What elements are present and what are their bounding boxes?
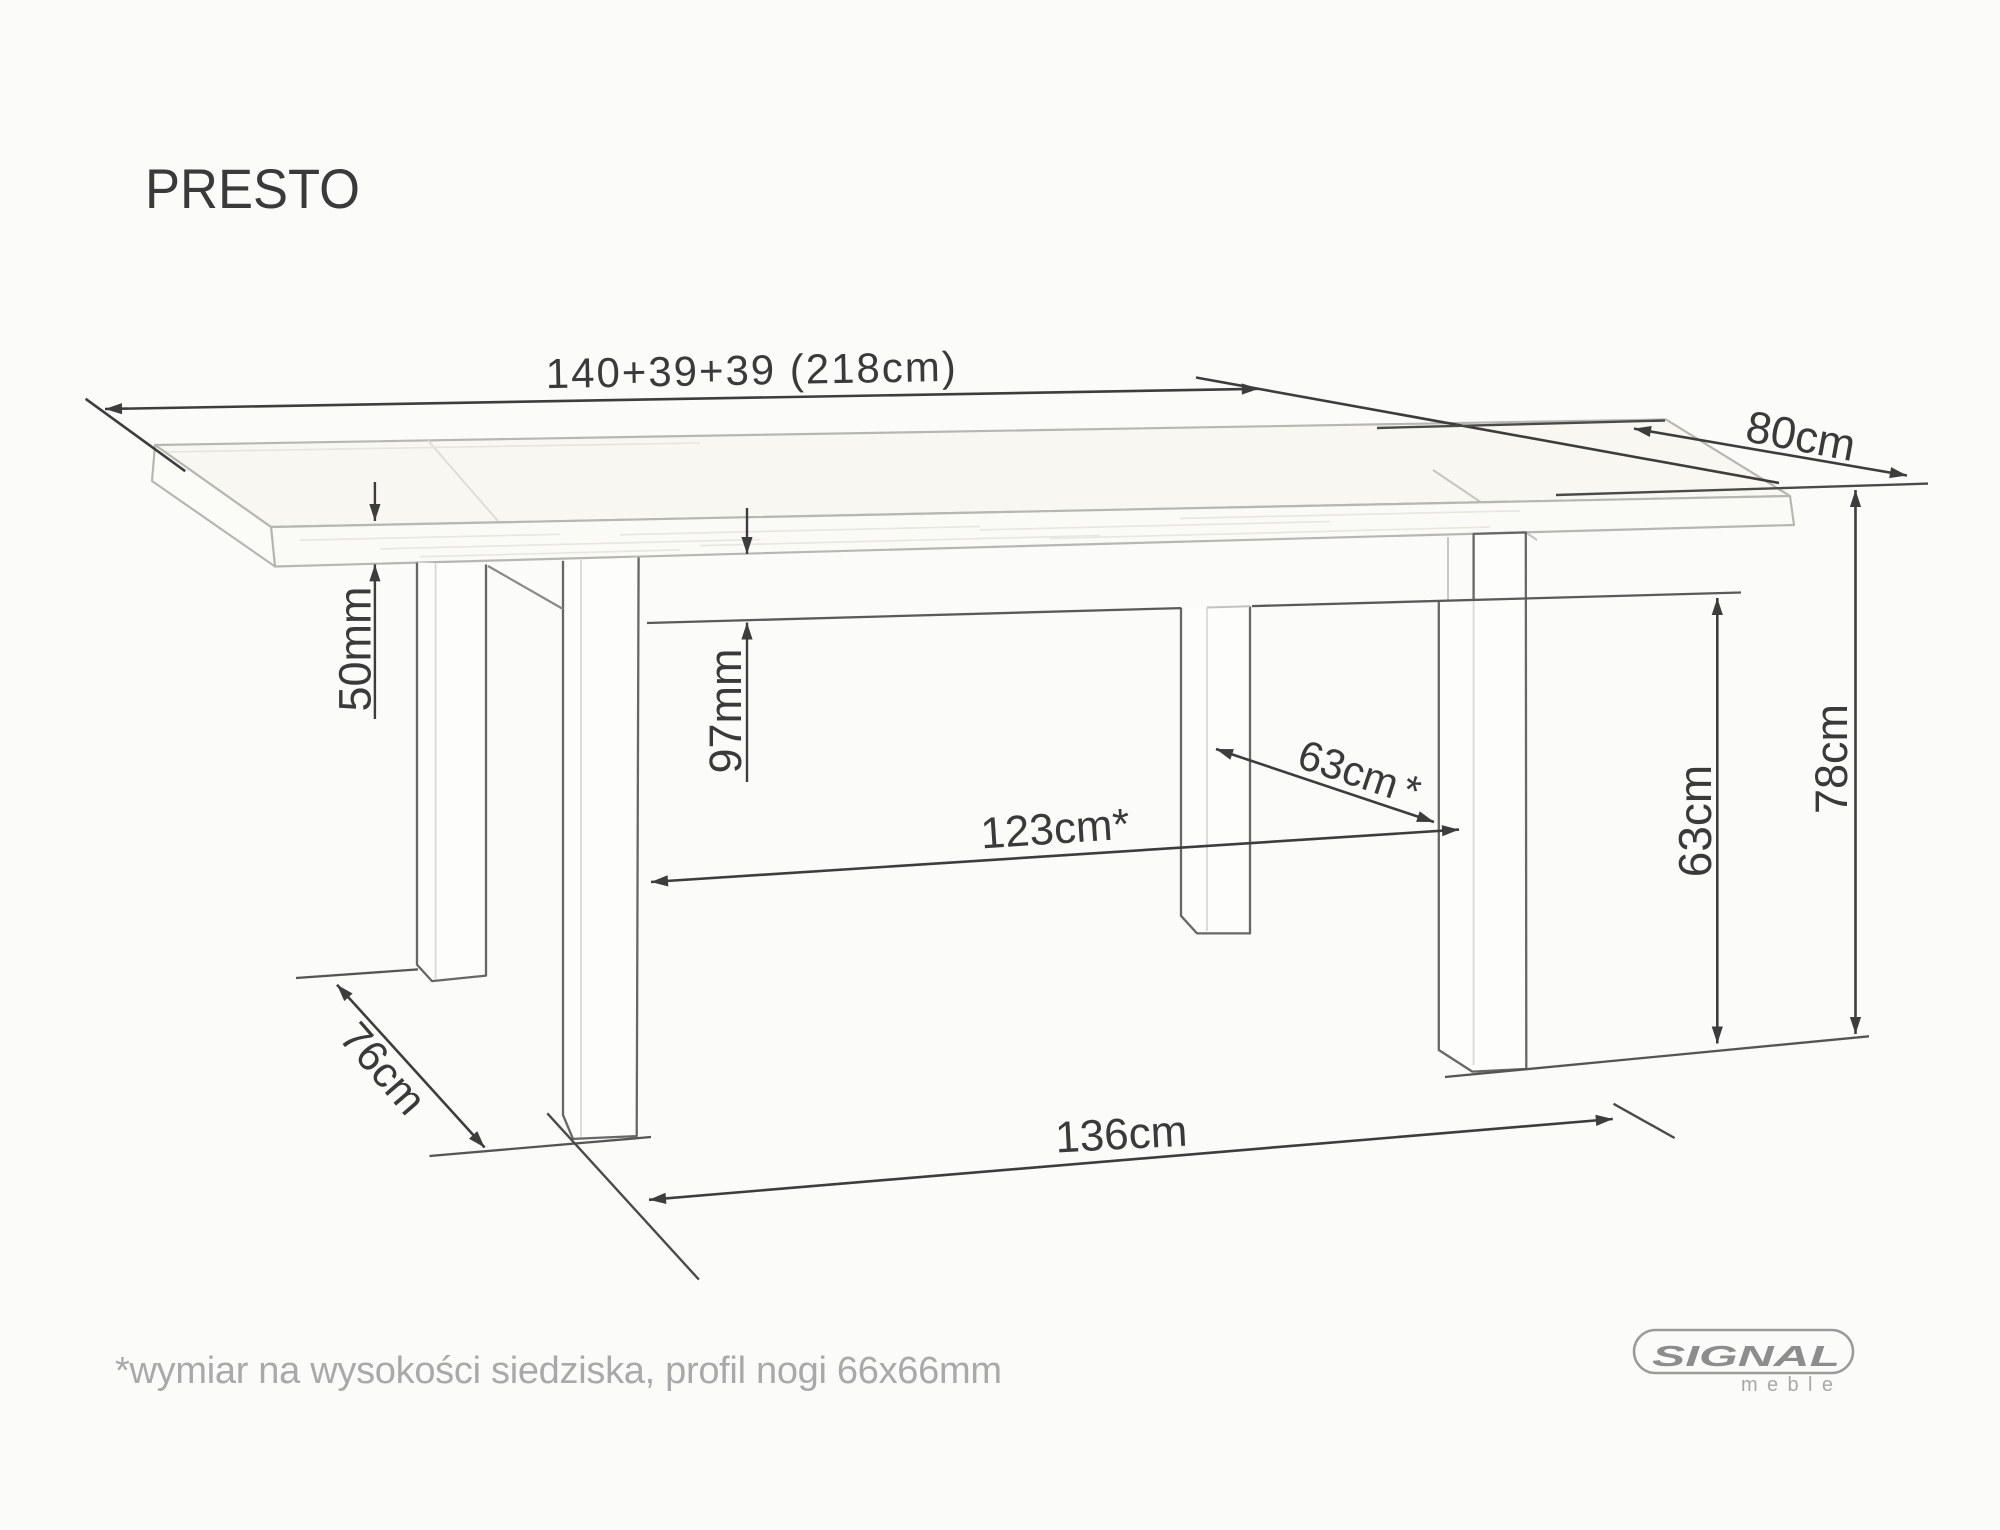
svg-text:*wymiar na wysokości siedziska: *wymiar na wysokości siedziska, profil n… (115, 1350, 1002, 1392)
svg-text:97mm: 97mm (700, 648, 751, 773)
svg-text:140+39+39 (218cm): 140+39+39 (218cm) (545, 343, 956, 397)
svg-text:136cm: 136cm (1054, 1107, 1188, 1163)
svg-text:PRESTO: PRESTO (145, 157, 360, 220)
svg-text:123cm*: 123cm* (979, 800, 1131, 859)
svg-text:50mm: 50mm (330, 586, 381, 711)
svg-text:SIGNAL: SIGNAL (1652, 1341, 1840, 1373)
svg-text:63cm: 63cm (1669, 765, 1721, 877)
svg-text:78cm: 78cm (1806, 704, 1857, 814)
